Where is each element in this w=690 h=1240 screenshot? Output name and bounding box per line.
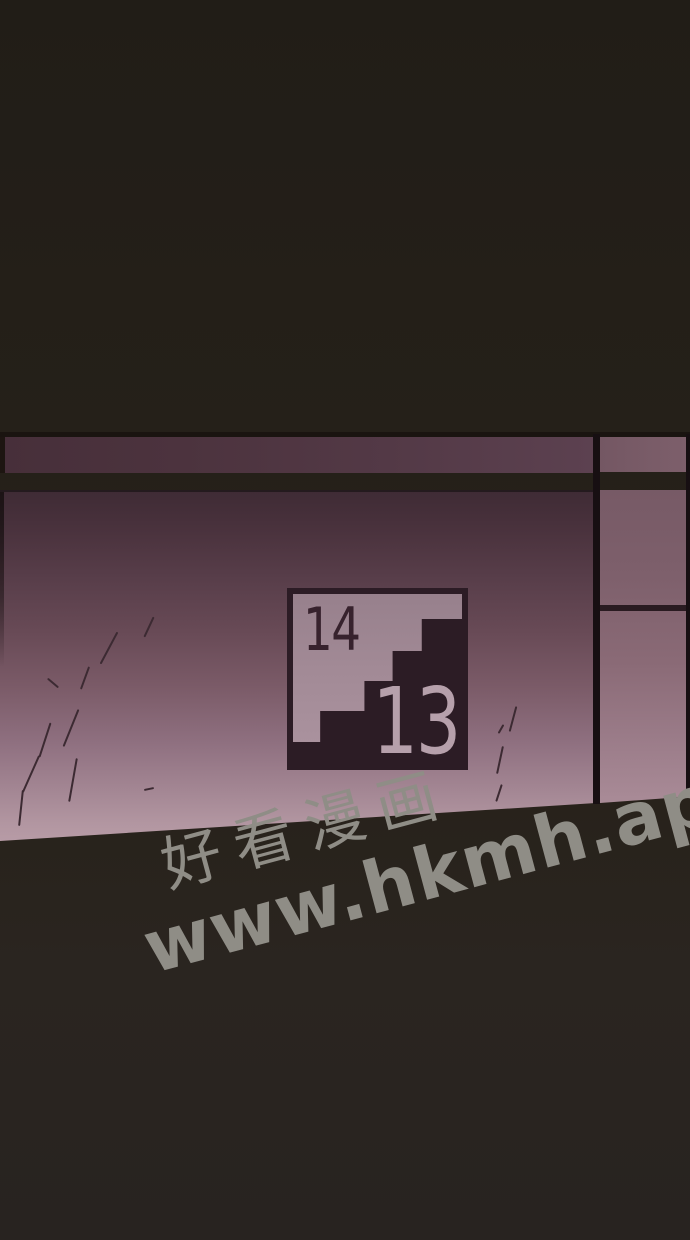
lower-floor-number: 13 [372, 676, 459, 764]
wall-left-edge-shadow [0, 492, 4, 667]
floor-sign-face: 14 13 [293, 594, 462, 764]
floor-sign: 14 13 [287, 588, 468, 770]
wall-band [0, 437, 594, 473]
wall-band-right-segment [600, 437, 686, 472]
comic-panel: 14 13 好看漫画 www.hkmh.app [0, 0, 690, 1240]
pillar-horizontal-line [600, 605, 686, 611]
upper-floor-number: 14 [303, 600, 359, 660]
